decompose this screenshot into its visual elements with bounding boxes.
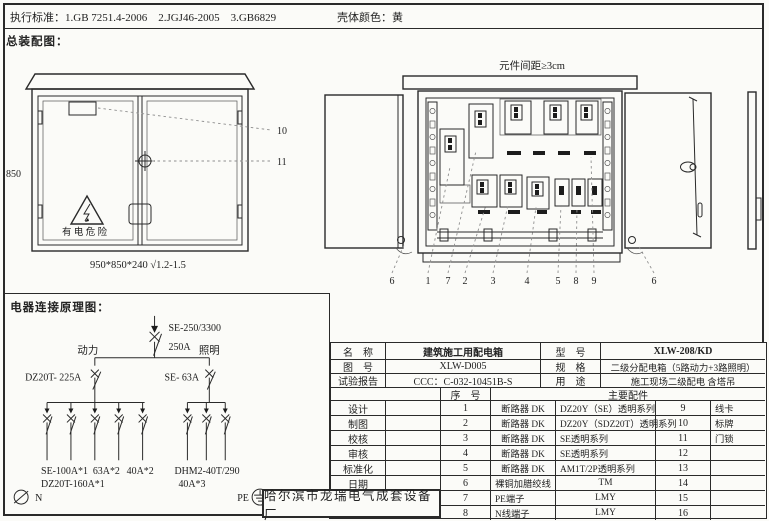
- left-open-door: [325, 95, 412, 254]
- part-name2: [711, 476, 765, 491]
- blank-cell: [331, 388, 441, 401]
- spec-value: 二级分配电箱（5路动力+3路照明）: [601, 360, 765, 374]
- callout: 9: [592, 276, 597, 287]
- callout-10: 10: [277, 126, 287, 137]
- busbar-row: [478, 210, 601, 214]
- part-name2: [711, 446, 765, 461]
- din-rail-column: [428, 102, 437, 230]
- neutral-label: N: [35, 493, 42, 504]
- power-breaker-model: DZ20T- 225A: [25, 373, 82, 384]
- height-dimension: 850: [6, 169, 21, 180]
- cabinet-inner-frame: [38, 96, 242, 245]
- part-no2: 13: [656, 461, 711, 476]
- part-spec: SE透明系列: [556, 446, 656, 461]
- spec-label: 规 格: [541, 360, 601, 374]
- name-label: 名 称: [331, 343, 386, 360]
- lighting-branch-label: 照明: [199, 345, 220, 357]
- lighting-breaker-model: SE- 63A: [165, 373, 200, 384]
- pe-label: PE: [237, 493, 249, 504]
- leader-lines: [392, 151, 654, 273]
- part-name: 断路器 DK: [491, 431, 556, 446]
- hazard-text: 有 电 危 险: [62, 226, 108, 238]
- door-split-line: [138, 96, 142, 245]
- breaker-component: [440, 129, 464, 185]
- neutral-symbol-icon: [14, 490, 28, 504]
- cabinet-roof: [403, 76, 637, 89]
- callout: 5: [556, 276, 561, 287]
- model-label: 型 号: [541, 343, 601, 360]
- main-breaker-model: SE-250/3300: [168, 323, 220, 334]
- callout: 1: [426, 276, 431, 287]
- spacing-note: 元件间距≥3cm: [499, 59, 565, 72]
- part-name2: [711, 506, 765, 520]
- schematic-title: 电器连接原理图：: [10, 300, 109, 314]
- right-door: [147, 101, 237, 240]
- callout: 2: [463, 276, 468, 287]
- breaker-component: [472, 175, 497, 207]
- drawing-no-label: 图 号: [331, 360, 386, 374]
- seq-header: 序 号: [441, 388, 491, 401]
- part-no2: 12: [656, 446, 711, 461]
- power-branch-rating: 40A*2: [127, 466, 154, 477]
- signature-cell: [386, 446, 441, 461]
- part-spec: DZ20Y（SDZ20T）透明系列: [556, 416, 656, 431]
- part-no: 3: [441, 431, 491, 446]
- breaker-component: [544, 101, 568, 134]
- power-branch-rating: 63A*2: [93, 466, 120, 477]
- part-no: 8: [441, 506, 491, 520]
- shell-color: 壳体颜色： 黄: [337, 5, 403, 29]
- leader-line: [98, 108, 271, 130]
- signature-cell: [386, 461, 441, 476]
- signoff-label: 设计: [331, 401, 386, 416]
- breaker-component: [555, 179, 569, 206]
- part-name: 断路器 DK: [491, 416, 556, 431]
- busbar-row: [507, 151, 596, 155]
- breaker-component: [500, 175, 522, 207]
- electric-hazard-icon: [71, 196, 103, 224]
- assembly-view-title: 总装配图：: [6, 33, 69, 49]
- signature-cell: [386, 416, 441, 431]
- nameplate: [69, 102, 96, 115]
- part-no: 5: [441, 461, 491, 476]
- power-branch-rating: SE-100A*1: [41, 466, 88, 477]
- main-breaker-rating: 250A: [168, 342, 191, 353]
- report-label: 试验报告: [331, 374, 386, 388]
- part-name2: [711, 461, 765, 476]
- standards-bar: 执行标准： 1.GB 7251.4-2006 2.JGJ46-2005 3.GB…: [5, 5, 762, 29]
- part-no: 7: [441, 491, 491, 506]
- part-no2: 16: [656, 506, 711, 520]
- cabinet-roof: [26, 74, 254, 89]
- branch-breaker-symbols: [43, 403, 230, 461]
- drawing-no-value: XLW-D005: [386, 360, 541, 374]
- name-value: 建筑施工用配电箱: [386, 343, 541, 360]
- main-breaker-symbol: [150, 316, 162, 358]
- breaker-component: [469, 104, 493, 158]
- signoff-label: 审核: [331, 446, 386, 461]
- power-branch-rating2: DZ20T-160A*1: [41, 479, 105, 490]
- use-label: 用 途: [541, 374, 601, 388]
- lighting-branch-rating: DHM2-40T/290: [174, 466, 239, 477]
- breaker-component: [576, 101, 598, 134]
- power-branch-label: 动力: [77, 344, 98, 357]
- drawing-sheet: 执行标准： 1.GB 7251.4-2006 2.JGJ46-2005 3.GB…: [0, 0, 769, 521]
- part-spec: LMY: [556, 506, 656, 520]
- part-spec: LMY: [556, 491, 656, 506]
- part-spec: AM1T/2P透明系列: [556, 461, 656, 476]
- signoff-label: 标准化: [331, 461, 386, 476]
- signature-cell: [386, 431, 441, 446]
- closed-cabinet-drawing: 有 电 危 险 950*850*240 √1.2-1.5 850 10 11: [5, 55, 300, 295]
- power-breaker-symbol: [91, 358, 101, 403]
- signoff-label: 制图: [331, 416, 386, 431]
- part-no: 4: [441, 446, 491, 461]
- part-no: 2: [441, 416, 491, 431]
- standards-value: 1.GB 7251.4-2006 2.JGJ46-2005 3.GB6829: [65, 9, 276, 25]
- callout: 7: [446, 276, 451, 287]
- part-name2: 标牌: [711, 416, 765, 431]
- cabinet-base: [423, 253, 620, 262]
- size-note: 950*850*240 √1.2-1.5: [90, 259, 186, 271]
- part-no: 1: [441, 401, 491, 416]
- breaker-component: [572, 179, 585, 206]
- company-name-box: 哈尔滨市龙瑞电气成套设备厂: [262, 489, 441, 518]
- door-lock-plate: [129, 204, 151, 224]
- lighting-breaker-symbol: [205, 358, 215, 403]
- mounting-plate: [440, 185, 470, 203]
- part-no: 6: [441, 476, 491, 491]
- callout: 6: [652, 276, 657, 287]
- callout: 8: [574, 276, 579, 287]
- part-no2: 10: [656, 416, 711, 431]
- part-no2: 15: [656, 491, 711, 506]
- side-panel-profile: [748, 92, 761, 249]
- signature-cell: [386, 401, 441, 416]
- signoff-label: 校核: [331, 431, 386, 446]
- callout: 4: [525, 276, 530, 287]
- callout-numbers: 6 1 7 2 3 4 5 8 9 6: [390, 276, 657, 287]
- part-name: N线端子: [491, 506, 556, 520]
- terminal-strip: [437, 229, 603, 241]
- part-spec: SE透明系列: [556, 431, 656, 446]
- shell-color-value: 黄: [392, 9, 403, 25]
- model-value: XLW-208/KD: [601, 343, 765, 360]
- open-cabinet-drawing: 元件间距≥3cm: [300, 55, 767, 300]
- part-name: PE端子: [491, 491, 556, 506]
- shell-color-label: 壳体颜色：: [337, 9, 392, 25]
- right-open-door: [625, 93, 711, 254]
- part-no2: 11: [656, 431, 711, 446]
- breaker-component: [527, 177, 549, 209]
- cabinet-body: [32, 89, 248, 251]
- part-name2: [711, 491, 765, 506]
- callout-11: 11: [277, 157, 287, 168]
- standards-label: 执行标准：: [10, 9, 65, 25]
- din-rail-column: [603, 102, 612, 230]
- company-name: 哈尔滨市龙瑞电气成套设备厂: [264, 485, 439, 523]
- part-name: 断路器 DK: [491, 461, 556, 476]
- part-name: 裸铜加腊绞线: [491, 476, 556, 491]
- callout: 6: [390, 276, 395, 287]
- part-no2: 9: [656, 401, 711, 416]
- part-no2: 14: [656, 476, 711, 491]
- callout: 3: [491, 276, 496, 287]
- lighting-branch-rating2: 40A*3: [178, 479, 205, 490]
- breaker-component: [588, 179, 602, 206]
- part-name: 断路器 DK: [491, 446, 556, 461]
- part-name: 断路器 DK: [491, 401, 556, 416]
- part-spec: DZ20Y（SE）透明系列: [556, 401, 656, 416]
- part-name2: 门锁: [711, 431, 765, 446]
- part-name2: 线卡: [711, 401, 765, 416]
- part-spec: TM: [556, 476, 656, 491]
- breaker-component: [505, 101, 531, 134]
- parts-header: 主要配件: [491, 388, 765, 401]
